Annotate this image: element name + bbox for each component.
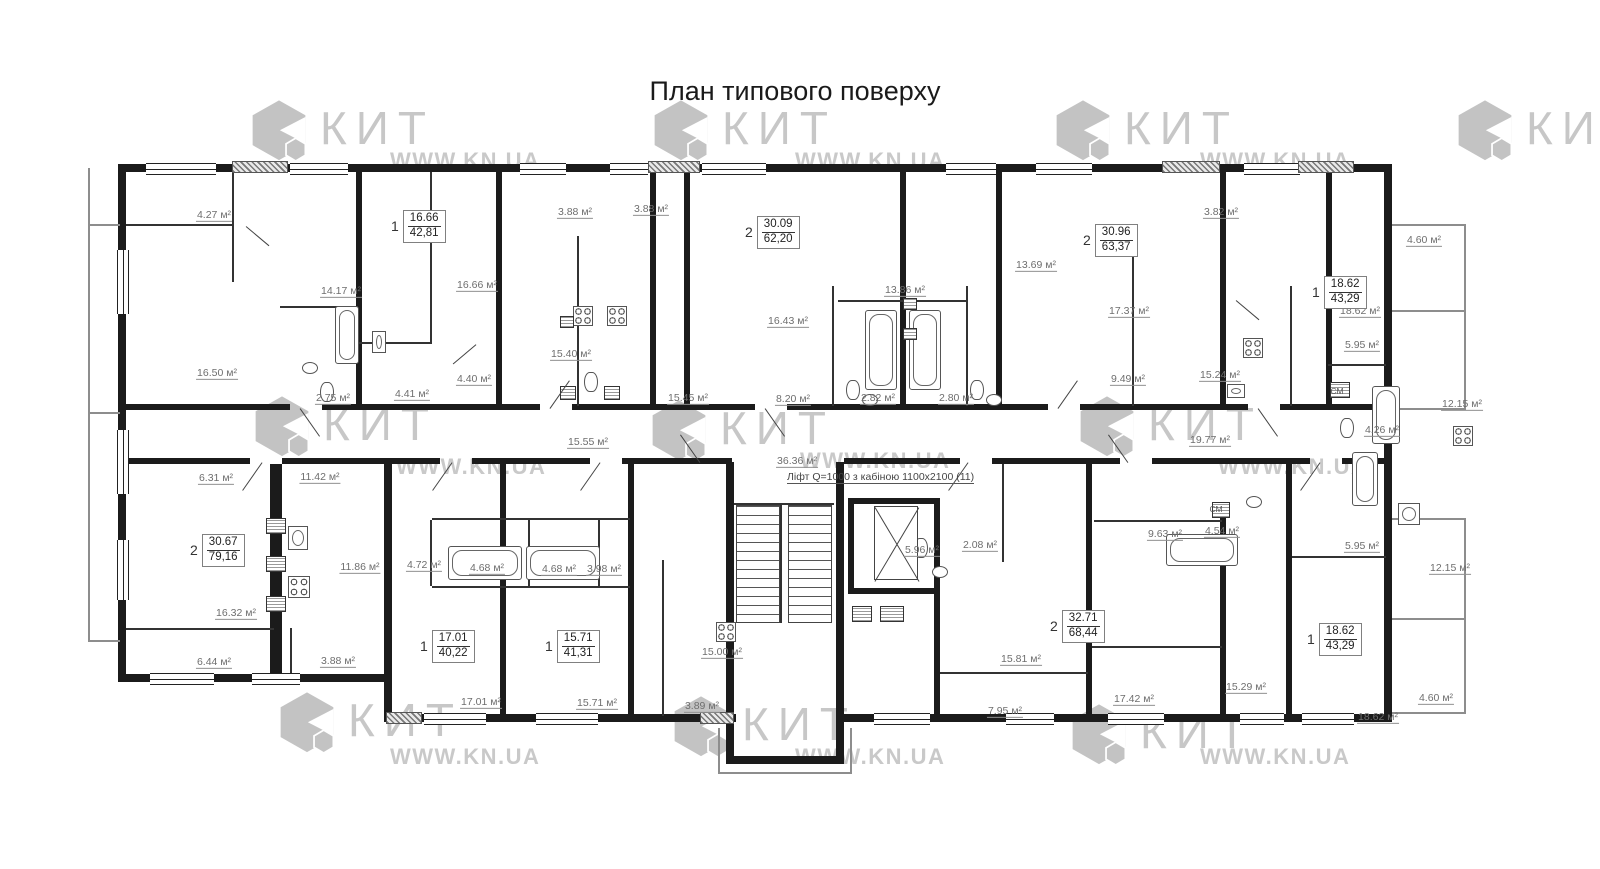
apartment-total-area: 62,20: [762, 233, 795, 247]
apartment-label: 1 18.62 43,29: [1307, 623, 1362, 656]
apartment-area-box: 30.67 79,16: [202, 534, 245, 567]
apartment-total-area: 43,29: [1329, 293, 1362, 307]
room-area-label: 7.95 м²: [987, 705, 1023, 718]
room-area-label: 2.80 м²: [938, 392, 974, 405]
room-area-label: 15.45 м²: [667, 392, 709, 405]
apartment-living-area: 32.71: [1067, 612, 1100, 627]
room-area-label: 16.50 м²: [196, 367, 238, 380]
room-area-label: 9.63 м²: [1147, 528, 1183, 541]
room-area-label: 17.37 м²: [1108, 305, 1150, 318]
room-area-label: 4.72 м²: [406, 559, 442, 572]
washing-machine-label: СМ: [1330, 386, 1343, 396]
apartment-total-area: 63,37: [1100, 241, 1133, 255]
room-area-label: 15.81 м²: [1000, 653, 1042, 666]
apartment-total-area: 43,29: [1324, 640, 1357, 654]
apartment-label: 1 18.62 43,29: [1312, 276, 1367, 309]
apartment-total-area: 41,31: [562, 647, 595, 661]
apartment-living-area: 17.01: [437, 632, 470, 647]
apartment-living-area: 15.71: [562, 632, 595, 647]
room-area-label: 6.31 м²: [198, 472, 234, 485]
room-area-label: 5.96 м²: [904, 544, 940, 557]
room-area-label: 15.00 м²: [701, 646, 743, 659]
apartment-label: 1 17.01 40,22: [420, 630, 475, 663]
apartment-total-area: 79,16: [207, 551, 240, 565]
room-area-label: 11.86 м²: [339, 561, 380, 574]
room-area-label: 2.08 м²: [962, 539, 998, 552]
apartment-rooms-count: 2: [1050, 618, 1058, 634]
room-area-label: 3.82 м²: [1203, 206, 1239, 219]
room-area-label: 4.68 м²: [541, 563, 577, 576]
apartment-living-area: 30.09: [762, 218, 795, 233]
apartment-total-area: 68,44: [1067, 627, 1100, 641]
apartment-area-box: 16.66 42,81: [403, 210, 446, 243]
room-area-label: 12.15 м²: [1429, 562, 1471, 575]
room-area-label: 4.27 м²: [196, 209, 232, 222]
apartment-label: 2 30.09 62,20: [745, 216, 800, 249]
room-area-label: 18.62 м²: [1357, 711, 1399, 724]
room-area-label: 3.98 м²: [586, 563, 622, 576]
room-area-label: 19.77 м²: [1189, 434, 1231, 447]
apartment-area-box: 18.62 43,29: [1319, 623, 1362, 656]
room-area-label: 5.95 м²: [1344, 339, 1380, 352]
room-area-label: 4.54 м²: [1204, 525, 1240, 538]
room-area-label: 5.95 м²: [1344, 540, 1380, 553]
room-area-label: 11.42 м²: [299, 471, 340, 484]
room-area-label: 4.60 м²: [1406, 234, 1442, 247]
room-area-label: 15.71 м²: [576, 697, 618, 710]
apartment-living-area: 18.62: [1324, 625, 1357, 640]
apartment-rooms-count: 1: [420, 638, 428, 654]
apartment-rooms-count: 1: [1312, 284, 1320, 300]
apartment-area-box: 30.96 63,37: [1095, 224, 1138, 257]
room-area-label: 15.29 м²: [1225, 681, 1267, 694]
apartment-rooms-count: 2: [190, 542, 198, 558]
floor-plan-page: План типового поверху КИТ: [0, 0, 1600, 869]
apartment-living-area: 30.96: [1100, 226, 1133, 241]
apartment-rooms-count: 1: [545, 638, 553, 654]
apartment-rooms-count: 2: [1083, 232, 1091, 248]
room-area-label: 6.44 м²: [196, 656, 232, 669]
room-area-label: 4.26 м²: [1364, 424, 1400, 437]
room-area-label: 4.40 м²: [456, 373, 492, 386]
apartment-label: 2 30.67 79,16: [190, 534, 245, 567]
apartment-area-box: 30.09 62,20: [757, 216, 800, 249]
elevator-note: Ліфт Q=1000 з кабіною 1100х2100 (11): [787, 471, 974, 484]
room-area-label: 17.01 м²: [460, 696, 502, 709]
apartment-area-box: 32.71 68,44: [1062, 610, 1105, 643]
apartment-total-area: 40,22: [437, 647, 470, 661]
room-area-label: 3.88 м²: [633, 203, 669, 216]
apartment-living-area: 30.67: [207, 536, 240, 551]
room-area-label: 15.40 м²: [550, 348, 592, 361]
apartment-label: 1 15.71 41,31: [545, 630, 600, 663]
apartment-label: 2 32.71 68,44: [1050, 610, 1105, 643]
washing-machine-label: СМ: [1209, 504, 1222, 514]
room-area-label: 13.69 м²: [1015, 259, 1057, 272]
room-area-label: 4.41 м²: [394, 388, 430, 401]
room-area-label: 2.75 м²: [315, 392, 351, 405]
room-area-label: 2.82 м²: [860, 392, 896, 405]
room-area-label: 3.89 м²: [684, 700, 720, 713]
room-area-label: 3.88 м²: [320, 655, 356, 668]
room-area-label: 16.43 м²: [767, 315, 809, 328]
room-area-label: 17.42 м²: [1113, 693, 1155, 706]
room-area-label: 14.17 м²: [320, 285, 362, 298]
room-area-label: 12.15 м²: [1441, 398, 1483, 411]
apartment-living-area: 16.66: [408, 212, 441, 227]
room-area-label: 15.55 м²: [567, 436, 609, 449]
room-area-label: 8.20 м²: [775, 393, 811, 406]
label-layer: 4.27 м²3.88 м²3.88 м²3.82 м²4.60 м²13.69…: [0, 0, 1600, 869]
room-area-label: 16.32 м²: [215, 607, 257, 620]
apartment-area-box: 17.01 40,22: [432, 630, 475, 663]
apartment-label: 2 30.96 63,37: [1083, 224, 1138, 257]
room-area-label: 36.36 м²: [776, 455, 818, 468]
apartment-rooms-count: 2: [745, 224, 753, 240]
page-title: План типового поверху: [650, 76, 941, 107]
apartment-area-box: 18.62 43,29: [1324, 276, 1367, 309]
apartment-living-area: 18.62: [1329, 278, 1362, 293]
room-area-label: 16.66 м²: [456, 279, 498, 292]
apartment-rooms-count: 1: [1307, 631, 1315, 647]
apartment-rooms-count: 1: [391, 218, 399, 234]
apartment-total-area: 42,81: [408, 227, 441, 241]
room-area-label: 13.86 м²: [884, 284, 926, 297]
apartment-area-box: 15.71 41,31: [557, 630, 600, 663]
room-area-label: 3.88 м²: [557, 206, 593, 219]
room-area-label: 4.60 м²: [1418, 692, 1454, 705]
room-area-label: 4.68 м²: [469, 562, 505, 575]
room-area-label: 15.24 м²: [1199, 369, 1241, 382]
apartment-label: 1 16.66 42,81: [391, 210, 446, 243]
room-area-label: 9.49 м²: [1110, 373, 1146, 386]
